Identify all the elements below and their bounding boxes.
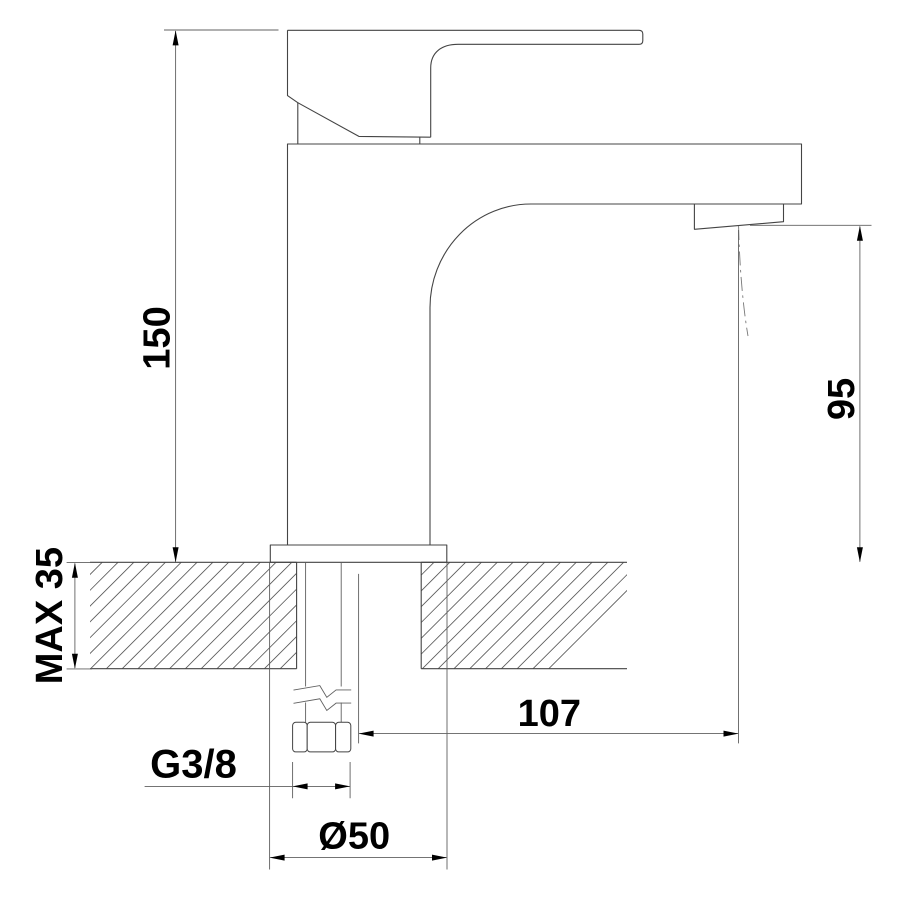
svg-text:Ø50: Ø50	[318, 816, 390, 858]
svg-text:150: 150	[137, 306, 179, 369]
svg-text:MAX 35: MAX 35	[29, 547, 71, 684]
svg-text:G3/8: G3/8	[150, 743, 237, 787]
svg-text:95: 95	[821, 378, 863, 420]
svg-text:107: 107	[518, 693, 581, 735]
